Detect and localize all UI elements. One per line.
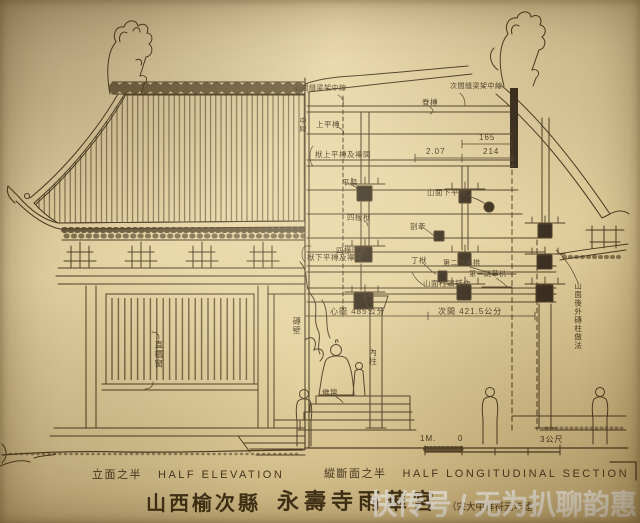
- watermark-text: 快传号 / 无为扒聊韵惠: [370, 483, 634, 523]
- annotation-ding-beam: 丁栿: [411, 257, 427, 266]
- annotation-upper-purlin: 上平槫: [316, 121, 340, 130]
- elevation-caption: 立面之半 HALF ELEVATION: [92, 466, 284, 482]
- dimension-rafter-2: 165: [479, 133, 495, 142]
- elevation-caption-zh: 立面之半: [92, 466, 142, 482]
- section-caption-en: HALF LONGITUDINAL SECTION: [403, 468, 630, 480]
- buddha-altar-shape: [298, 396, 416, 430]
- front-column: [254, 286, 272, 428]
- annotation-first-jump-bracket: 第一跳華栱: [469, 271, 507, 279]
- corner-column: [82, 286, 100, 428]
- drawing-sheet: 心間縫梁架中線 脊槫 次間縫梁架中線 中線 上平槫 栿上平槫及襻間 平梁 山面下…: [0, 0, 640, 523]
- annotation-four-rafter-beam: 四椽栿: [347, 214, 371, 223]
- annotation-buddha-altar: 佛壇: [322, 389, 338, 398]
- annotation-centerline: 中線: [298, 117, 306, 133]
- dimension-side-bay: 次間 421.5公分: [438, 306, 502, 317]
- annotation-side-frame-centerline: 次間縫梁架中線: [450, 83, 503, 91]
- annotation-ridge-purlin: 脊槫: [422, 99, 438, 108]
- annotation-tie-beam: 剳牽: [410, 223, 426, 232]
- scale-bar-meter-label: 1M.: [420, 434, 436, 443]
- annotation-collar-beam: 平梁: [342, 179, 358, 188]
- elevation-roof-tiles: [34, 95, 305, 223]
- annotation-gable-capital-bracket: 山面柱頭鋪作: [423, 280, 471, 289]
- gable-column: [535, 304, 556, 428]
- scale-bar: [425, 445, 560, 455]
- annotation-gable-lower-purlin: 山面下平槫: [427, 189, 467, 198]
- annotation-gable-note: 山面後外磚柱做法: [573, 282, 582, 350]
- attendant-statue: [353, 363, 365, 396]
- annotation-inner-column: 內柱: [368, 348, 377, 366]
- title-location: 山西榆次縣: [146, 487, 261, 516]
- section-caption: 縱斷面之半 HALF LONGITUDINAL SECTION: [324, 465, 629, 481]
- elevation-caption-en: HALF ELEVATION: [158, 469, 284, 481]
- annotation-brick-wall: 磚壁: [292, 317, 301, 335]
- annotation-four-rafter-beam-soffit: 四椽明栿: [336, 247, 368, 256]
- buddha-statue: [319, 340, 354, 395]
- dimension-center-bay: 心間 485公分: [330, 306, 386, 317]
- annotation-center-frame-centerline: 心間縫梁架中線: [294, 85, 347, 93]
- dimension-rafter-3: 214: [483, 147, 499, 156]
- annotation-lattice-window: 直櫺窗: [153, 340, 163, 369]
- scale-bar-zero-label: 0: [458, 434, 463, 443]
- scale-bar-end-label: 3公尺: [540, 434, 563, 445]
- annotation-second-jump-bracket: 第二跳華栱: [443, 260, 481, 268]
- dimension-rafter-1: 2.07: [426, 147, 446, 156]
- ridge-ornament-section: [500, 12, 545, 86]
- scale-figure-middle: [482, 388, 497, 445]
- annotation-purlin-above-beam: 栿上平槫及襻間: [315, 151, 371, 160]
- section-caption-zh: 縱斷面之半: [324, 465, 387, 481]
